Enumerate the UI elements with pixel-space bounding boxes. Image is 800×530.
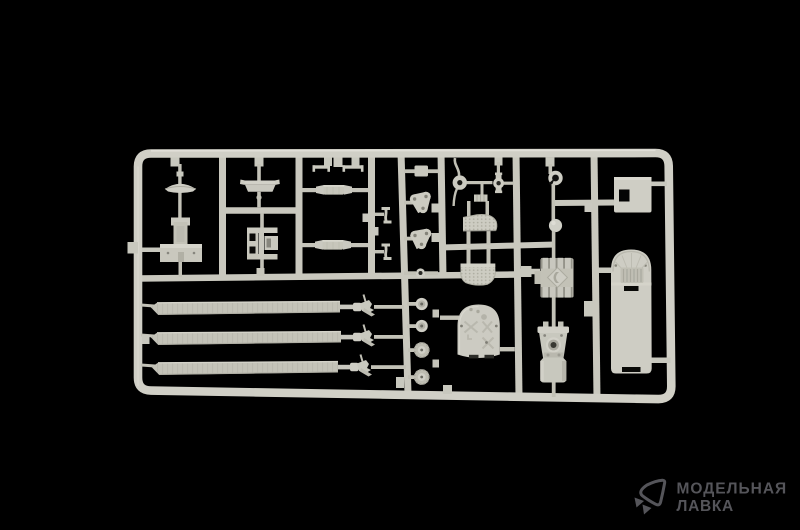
svg-text:ЛАВКА: ЛАВКА <box>677 498 734 515</box>
svg-text:МОДЕЛЬНАЯ: МОДЕЛЬНАЯ <box>677 481 788 498</box>
